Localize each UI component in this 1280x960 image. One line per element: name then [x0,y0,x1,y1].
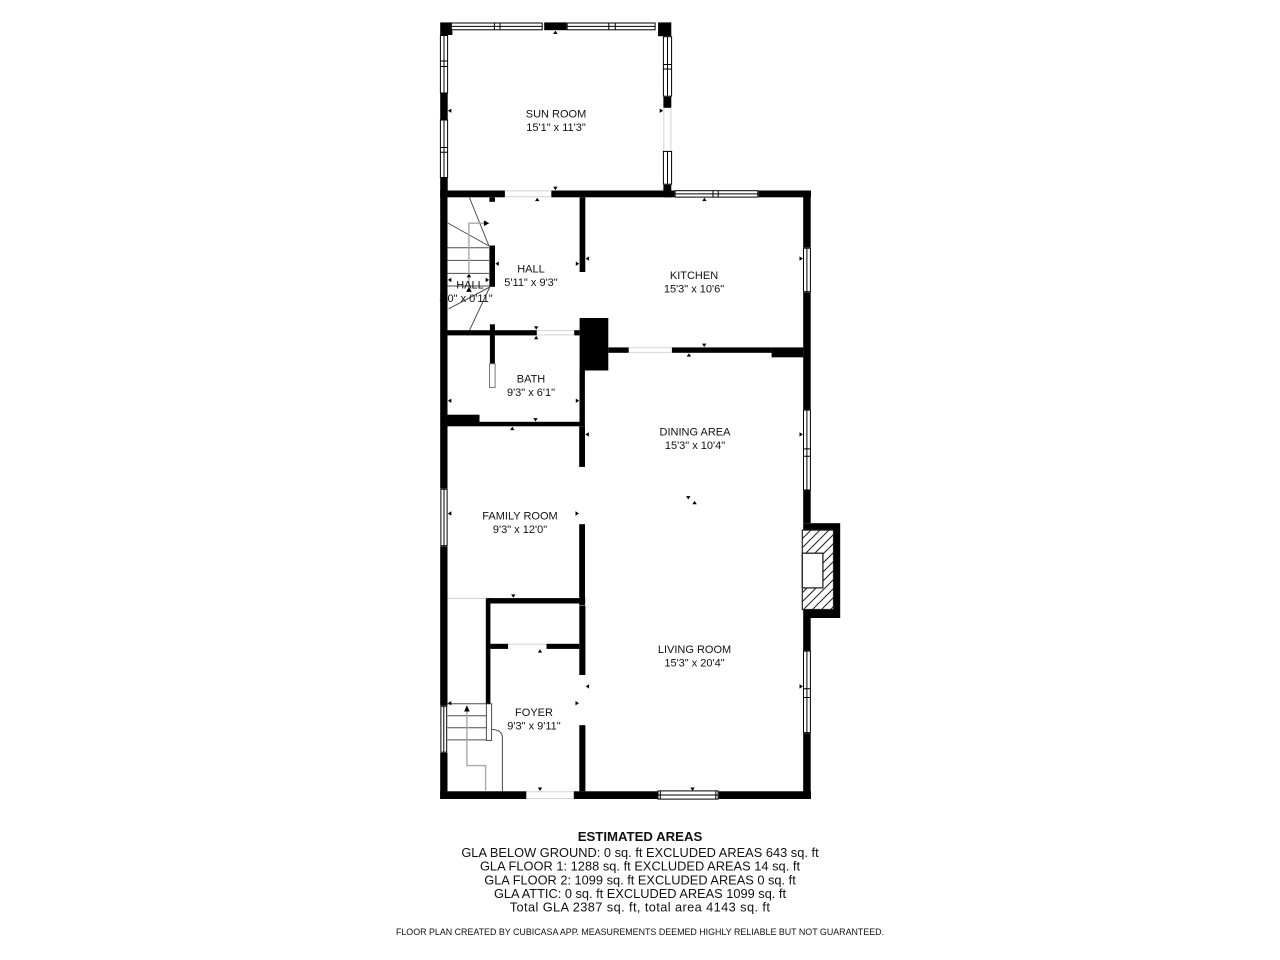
svg-text:ESTIMATED AREAS: ESTIMATED AREAS [578,829,703,844]
svg-text:LIVING ROOM: LIVING ROOM [658,644,731,656]
svg-text:DINING AREA: DINING AREA [660,427,732,439]
svg-text:15'1" x 11'3": 15'1" x 11'3" [526,122,586,134]
svg-text:GLA BELOW GROUND: 0 sq. ft EXC: GLA BELOW GROUND: 0 sq. ft EXCLUDED AREA… [461,845,819,860]
svg-text:15'3" x 20'4": 15'3" x 20'4" [664,658,724,670]
svg-text:15'3" x 10'4": 15'3" x 10'4" [665,440,725,452]
svg-text:FOYER: FOYER [515,707,553,719]
svg-text:SUN ROOM: SUN ROOM [526,109,587,121]
svg-text:15'3" x 10'6": 15'3" x 10'6" [664,284,724,296]
svg-text:FAMILY ROOM: FAMILY ROOM [482,510,557,522]
svg-text:HALL: HALL [517,264,545,276]
svg-text:5'11" x 9'3": 5'11" x 9'3" [504,277,557,289]
svg-text:Total GLA 2387 sq. ft, total a: Total GLA 2387 sq. ft, total area 4143 s… [510,900,771,915]
svg-text:FLOOR PLAN CREATED BY CUBICASA: FLOOR PLAN CREATED BY CUBICASA APP. MEAS… [396,927,884,937]
svg-text:BATH: BATH [517,374,546,386]
svg-text:9'3" x 12'0": 9'3" x 12'0" [493,524,547,536]
svg-text:9'3" x 9'11": 9'3" x 9'11" [507,721,560,733]
svg-text:KITCHEN: KITCHEN [670,270,718,282]
svg-text:9'3" x 6'1": 9'3" x 6'1" [507,387,555,399]
svg-text:HALL: HALL [456,280,484,292]
